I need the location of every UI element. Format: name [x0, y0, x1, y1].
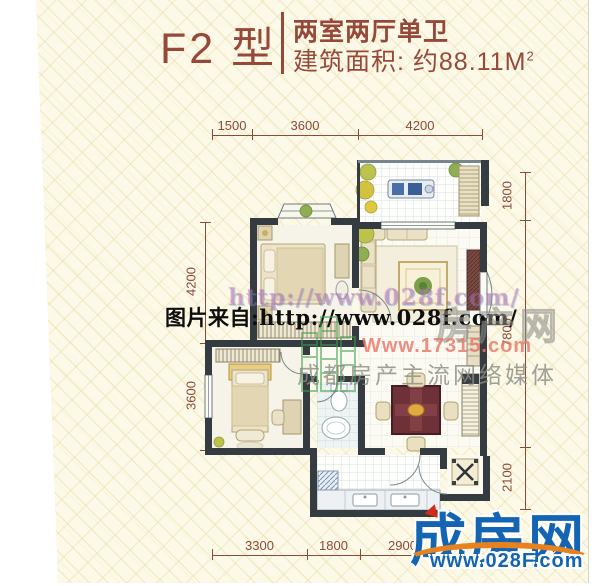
dim-label: 1500 [212, 118, 252, 133]
brand-logo: 成房网 www.028F.com [394, 496, 600, 586]
wardrobe [216, 349, 280, 362]
desk [283, 400, 301, 434]
plant-icon [214, 437, 224, 447]
plant-icon [365, 201, 377, 213]
entry-table [452, 459, 478, 485]
dimension-top: 1500 3600 4200 [212, 118, 483, 138]
dresser [335, 244, 349, 278]
bathtub [322, 417, 350, 439]
fridge [318, 471, 338, 490]
dim-label: 3600 [252, 118, 358, 133]
dining-chair [376, 402, 390, 420]
plant-icon [360, 164, 376, 180]
balcony-bench [459, 166, 479, 216]
second-bed [229, 364, 271, 441]
entry [452, 459, 478, 485]
dim-label: 3300 [212, 538, 307, 553]
dim-label: 4200 [358, 118, 482, 133]
lounge-chair [388, 180, 434, 198]
watermark-site-url: Www.17315.com [362, 335, 532, 358]
watermark-slogan: 成都房产主流网络媒体 [297, 356, 557, 390]
dining-chair [444, 402, 458, 420]
dim-label: 1800 [500, 166, 515, 226]
desk-chair [272, 410, 284, 425]
plant-icon [300, 205, 312, 217]
header-divider [281, 12, 284, 74]
logo-url: www.028F.com [430, 550, 584, 573]
dim-label: 1800 [307, 538, 360, 553]
area-exponent: 2 [526, 49, 534, 64]
dining-table [392, 386, 440, 434]
unit-type-title: F2 型 [160, 14, 277, 76]
dim-label: 3600 [184, 366, 199, 426]
floorplan-page: F2 型 两室两厅单卫 建筑面积: 约88.11M2 1500 3600 420… [0, 0, 600, 586]
area-value: 建筑面积: 约88.11M [293, 48, 526, 76]
unit-area-text: 建筑面积: 约88.11M2 [293, 42, 535, 78]
